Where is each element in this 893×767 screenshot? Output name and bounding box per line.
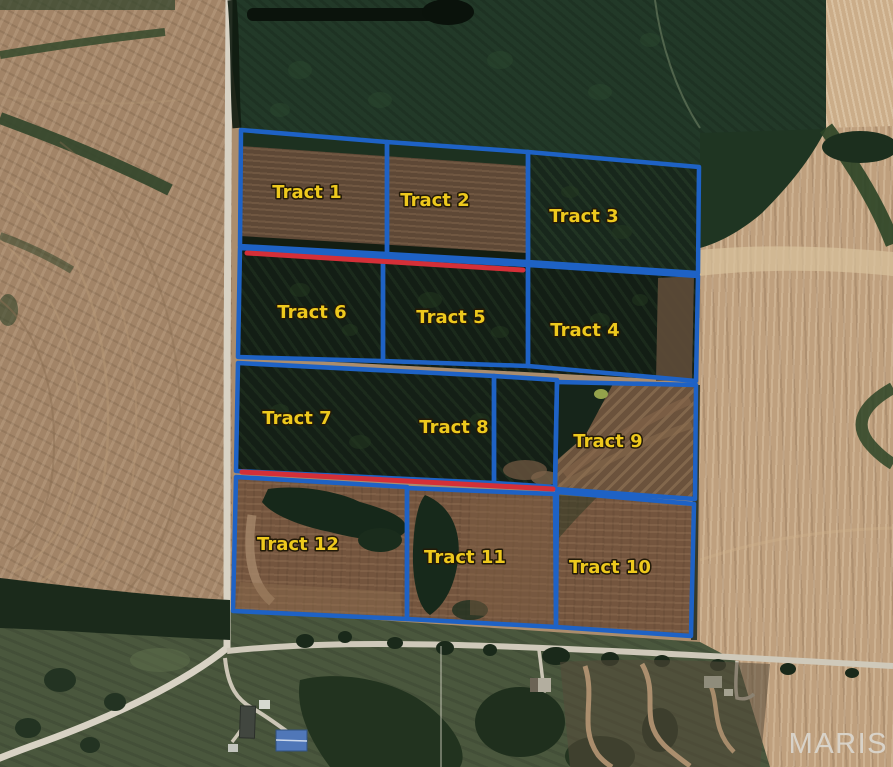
aerial-parcel-photo: Tract 1Tract 2Tract 3Tract 4Tract 5Tract… [0, 0, 893, 767]
tract-label: Tract 9 [573, 431, 642, 452]
forest-detail [232, 0, 700, 263]
left-field-detail [0, 0, 180, 630]
tract-label: Tract 8 [419, 417, 488, 438]
tract-label: Tract 1 [272, 182, 341, 203]
tract-label: Tract 11 [424, 547, 506, 568]
tract-overlay: Tract 1Tract 2Tract 3Tract 4Tract 5Tract… [233, 130, 699, 636]
tract-label: Tract 3 [549, 206, 618, 227]
tract-label: Tract 5 [416, 307, 485, 328]
tract-label: Tract 2 [400, 190, 469, 211]
tract-label: Tract 4 [550, 320, 619, 341]
tract-label: Tract 12 [257, 534, 339, 555]
maris-watermark: MARIS [789, 728, 888, 761]
map-art: Tract 1Tract 2Tract 3Tract 4Tract 5Tract… [0, 0, 893, 767]
tract-label: Tract 6 [277, 302, 346, 323]
tract-label: Tract 7 [262, 408, 331, 429]
tract-label: Tract 10 [569, 557, 651, 578]
